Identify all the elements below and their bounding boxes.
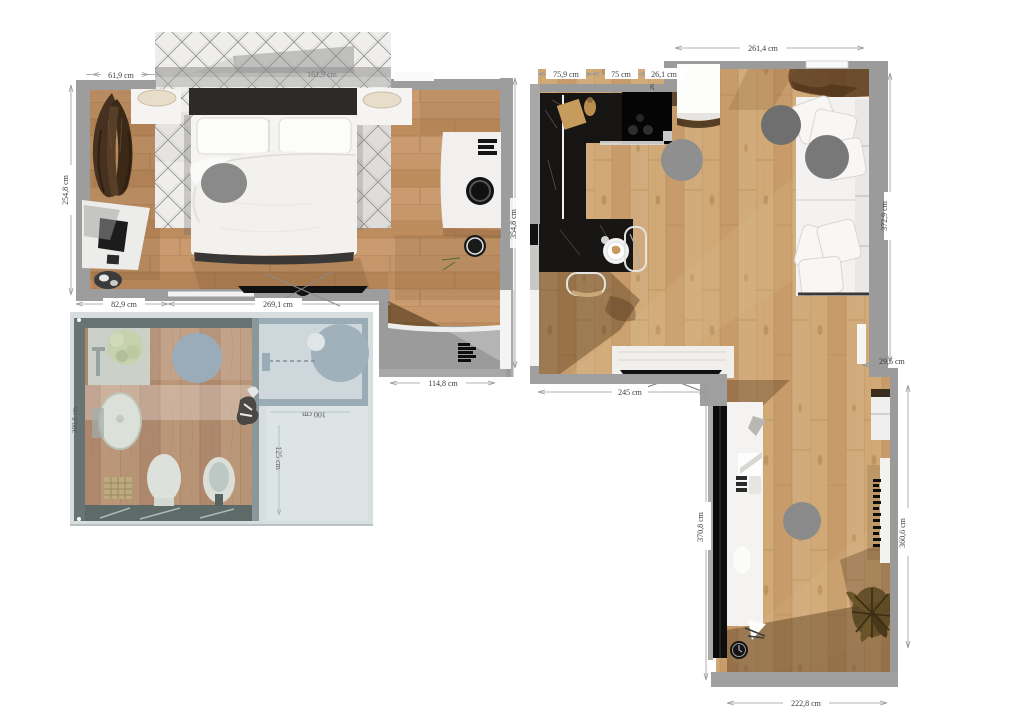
svg-text:261,4 cm: 261,4 cm — [748, 44, 779, 53]
svg-text:354,8 cm: 354,8 cm — [509, 208, 518, 239]
svg-text:114,8 cm: 114,8 cm — [428, 379, 458, 388]
svg-text:26: 26 — [650, 84, 656, 90]
svg-text:75,9 cm: 75,9 cm — [553, 70, 580, 79]
svg-text:245 cm: 245 cm — [618, 388, 643, 397]
svg-text:61,9 cm: 61,9 cm — [108, 71, 135, 80]
svg-text:370,8 cm: 370,8 cm — [696, 511, 705, 542]
svg-text:75 cm: 75 cm — [611, 70, 632, 79]
svg-text:26,1 cm: 26,1 cm — [651, 70, 678, 79]
svg-text:222,8 cm: 222,8 cm — [791, 699, 822, 708]
svg-text:82,9 cm: 82,9 cm — [111, 300, 138, 309]
svg-text:29,5 cm: 29,5 cm — [879, 357, 906, 366]
svg-text:254,8 cm: 254,8 cm — [61, 174, 70, 205]
svg-text:360,6 cm: 360,6 cm — [898, 517, 907, 548]
svg-text:269,1 cm: 269,1 cm — [263, 300, 294, 309]
svg-text:372,9 cm: 372,9 cm — [880, 200, 889, 231]
svg-text:161,9 cm: 161,9 cm — [307, 70, 338, 79]
